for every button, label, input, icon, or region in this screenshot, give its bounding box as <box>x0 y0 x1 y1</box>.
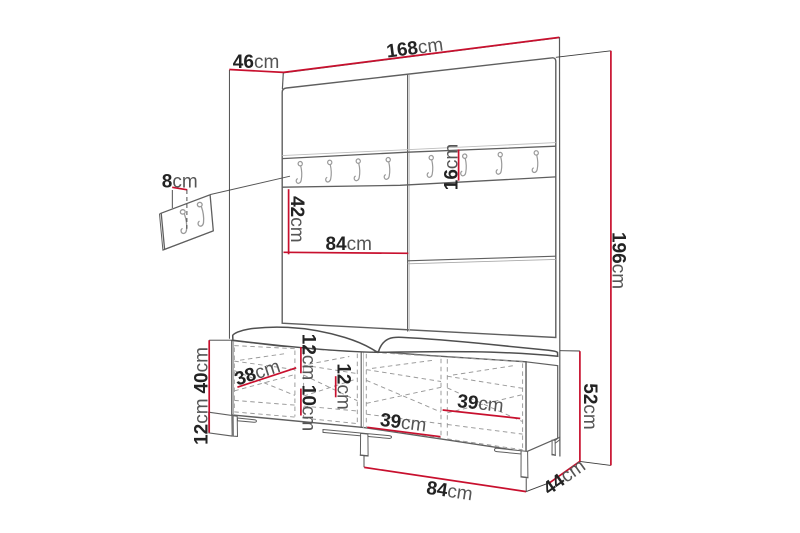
svg-text:84cm: 84cm <box>325 234 371 255</box>
svg-text:196cm: 196cm <box>608 232 629 289</box>
svg-text:10cm: 10cm <box>298 385 319 431</box>
svg-text:12cm: 12cm <box>191 398 212 444</box>
svg-text:12cm: 12cm <box>333 363 354 409</box>
svg-text:42cm: 42cm <box>286 196 307 242</box>
svg-text:8cm: 8cm <box>162 172 198 193</box>
svg-text:46cm: 46cm <box>233 52 279 73</box>
svg-text:40cm: 40cm <box>191 347 212 393</box>
svg-text:52cm: 52cm <box>579 383 600 429</box>
svg-text:16cm: 16cm <box>441 144 462 190</box>
svg-text:12cm: 12cm <box>298 334 319 380</box>
